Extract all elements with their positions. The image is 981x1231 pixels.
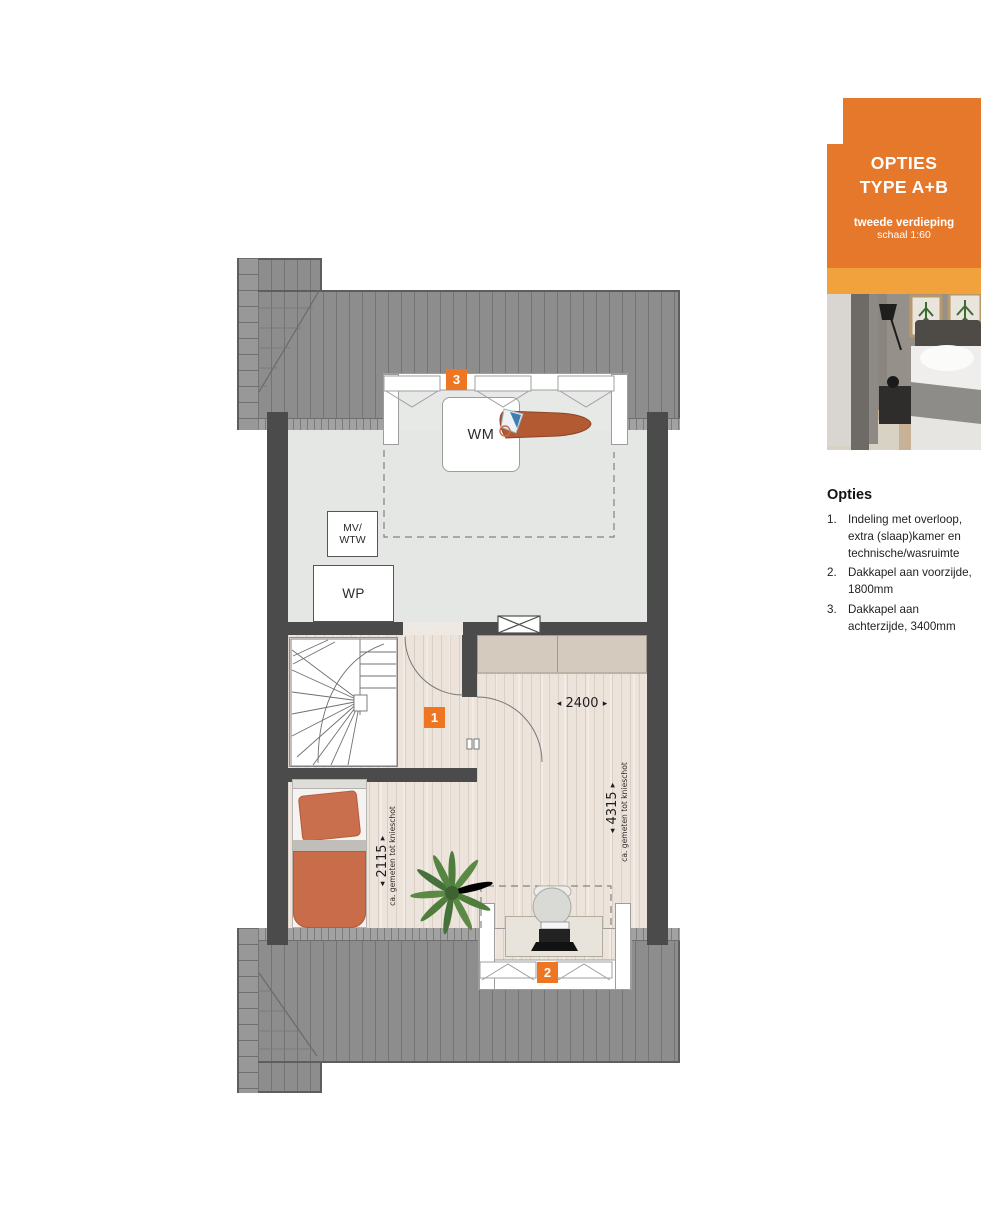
option-item-3: 3. Dakkapel aan achterzijde, 3400mm: [827, 602, 979, 636]
sidebar-panel-strip: [827, 268, 981, 294]
heat-pump-unit: WP: [313, 565, 394, 622]
panel-title-line1: OPTIES: [827, 152, 981, 176]
roof-top-edge-strip: [237, 258, 258, 430]
panel-scale: schaal 1:60: [827, 229, 981, 241]
dimension-depth-right-note: ca. gemeten tot knieschot: [620, 762, 632, 862]
marker-1: 1: [424, 707, 445, 728]
option-text: Dakkapel aan achterzijde, 3400mm: [848, 602, 979, 636]
options-list: Opties 1. Indeling met overloop, extra (…: [827, 487, 979, 639]
dormer-front-jamb-right: [615, 903, 631, 990]
dimension-room-width: ◂ 2400 ▸: [532, 696, 632, 711]
dimension-depth-right-value: 4315: [605, 791, 620, 824]
washing-machine: WM: [442, 397, 520, 472]
photo-curtain-dark: [851, 294, 869, 450]
heat-pump-label: WP: [342, 586, 365, 601]
staircase-area: [289, 637, 398, 767]
dim-arrow-left-icon: ◂: [557, 699, 562, 709]
option-item-1: 1. Indeling met overloop, extra (slaap)k…: [827, 512, 979, 562]
dim-arrow-left-icon: ◂: [378, 882, 388, 887]
wall-mid-right: [463, 622, 648, 635]
option-number: 3.: [827, 602, 848, 636]
wall-hall-vertical: [462, 635, 477, 697]
bed-duvet: [293, 851, 366, 928]
wardrobe: [477, 635, 647, 674]
wardrobe-divider: [557, 636, 558, 672]
bedroom-photo-art: [827, 294, 981, 450]
dimension-depth-right: ◂ 4315 ▸: [605, 773, 621, 843]
option-item-2: 2. Dakkapel aan voorzijde, 1800mm: [827, 565, 979, 599]
page: WM MV/ WTW WP: [0, 0, 981, 1231]
dim-arrow-right-icon: ▸: [378, 836, 388, 841]
marker-2: 2: [537, 962, 558, 983]
panel-subtitle: tweede verdieping: [827, 217, 981, 229]
wall-left: [267, 412, 288, 945]
sidebar-panel-top: [843, 98, 981, 144]
bed-pillow: [298, 790, 361, 842]
dim-arrow-right-icon: ▸: [608, 783, 618, 788]
sidebar-panel-main: OPTIES TYPE A+B tweede verdieping schaal…: [827, 144, 981, 268]
dormer-front-jamb-left: [479, 903, 495, 990]
photo-curtain-light: [827, 294, 851, 446]
panel-title-line2: TYPE A+B: [827, 176, 981, 200]
roof-top-protrusion: [258, 258, 322, 292]
mv-wtw-unit: MV/ WTW: [327, 511, 378, 557]
roof-bottom-protrusion: [258, 1063, 322, 1093]
dimension-room-width-value: 2400: [565, 696, 598, 711]
bed: [292, 779, 367, 928]
bed-headboard: [293, 780, 366, 789]
panel-title: OPTIES TYPE A+B: [827, 144, 981, 199]
option-number: 1.: [827, 512, 848, 562]
dim-arrow-left-icon: ◂: [608, 829, 618, 834]
option-text: Indeling met overloop, extra (slaap)kame…: [848, 512, 979, 562]
photo-nightstand: [879, 386, 913, 424]
dim-arrow-right-icon: ▸: [603, 699, 608, 709]
bedroom-photo: [827, 294, 981, 450]
door-threshold: [403, 622, 463, 635]
desk: [505, 916, 603, 957]
options-heading: Opties: [827, 487, 979, 503]
option-text: Dakkapel aan voorzijde, 1800mm: [848, 565, 979, 599]
mv-wtw-label: MV/ WTW: [339, 522, 365, 546]
photo-pillow: [920, 345, 974, 371]
dimension-depth-left-note: ca. gemeten tot knieschot: [388, 806, 400, 906]
wall-mid-left: [288, 622, 403, 635]
wall-right: [647, 412, 668, 945]
marker-3: 3: [446, 369, 467, 390]
dormer-rear-jamb-right: [611, 374, 628, 445]
washing-machine-label: WM: [468, 427, 495, 443]
option-number: 2.: [827, 565, 848, 599]
dormer-rear-jamb-left: [383, 374, 399, 445]
roof-bottom-edge-strip: [237, 928, 258, 1093]
